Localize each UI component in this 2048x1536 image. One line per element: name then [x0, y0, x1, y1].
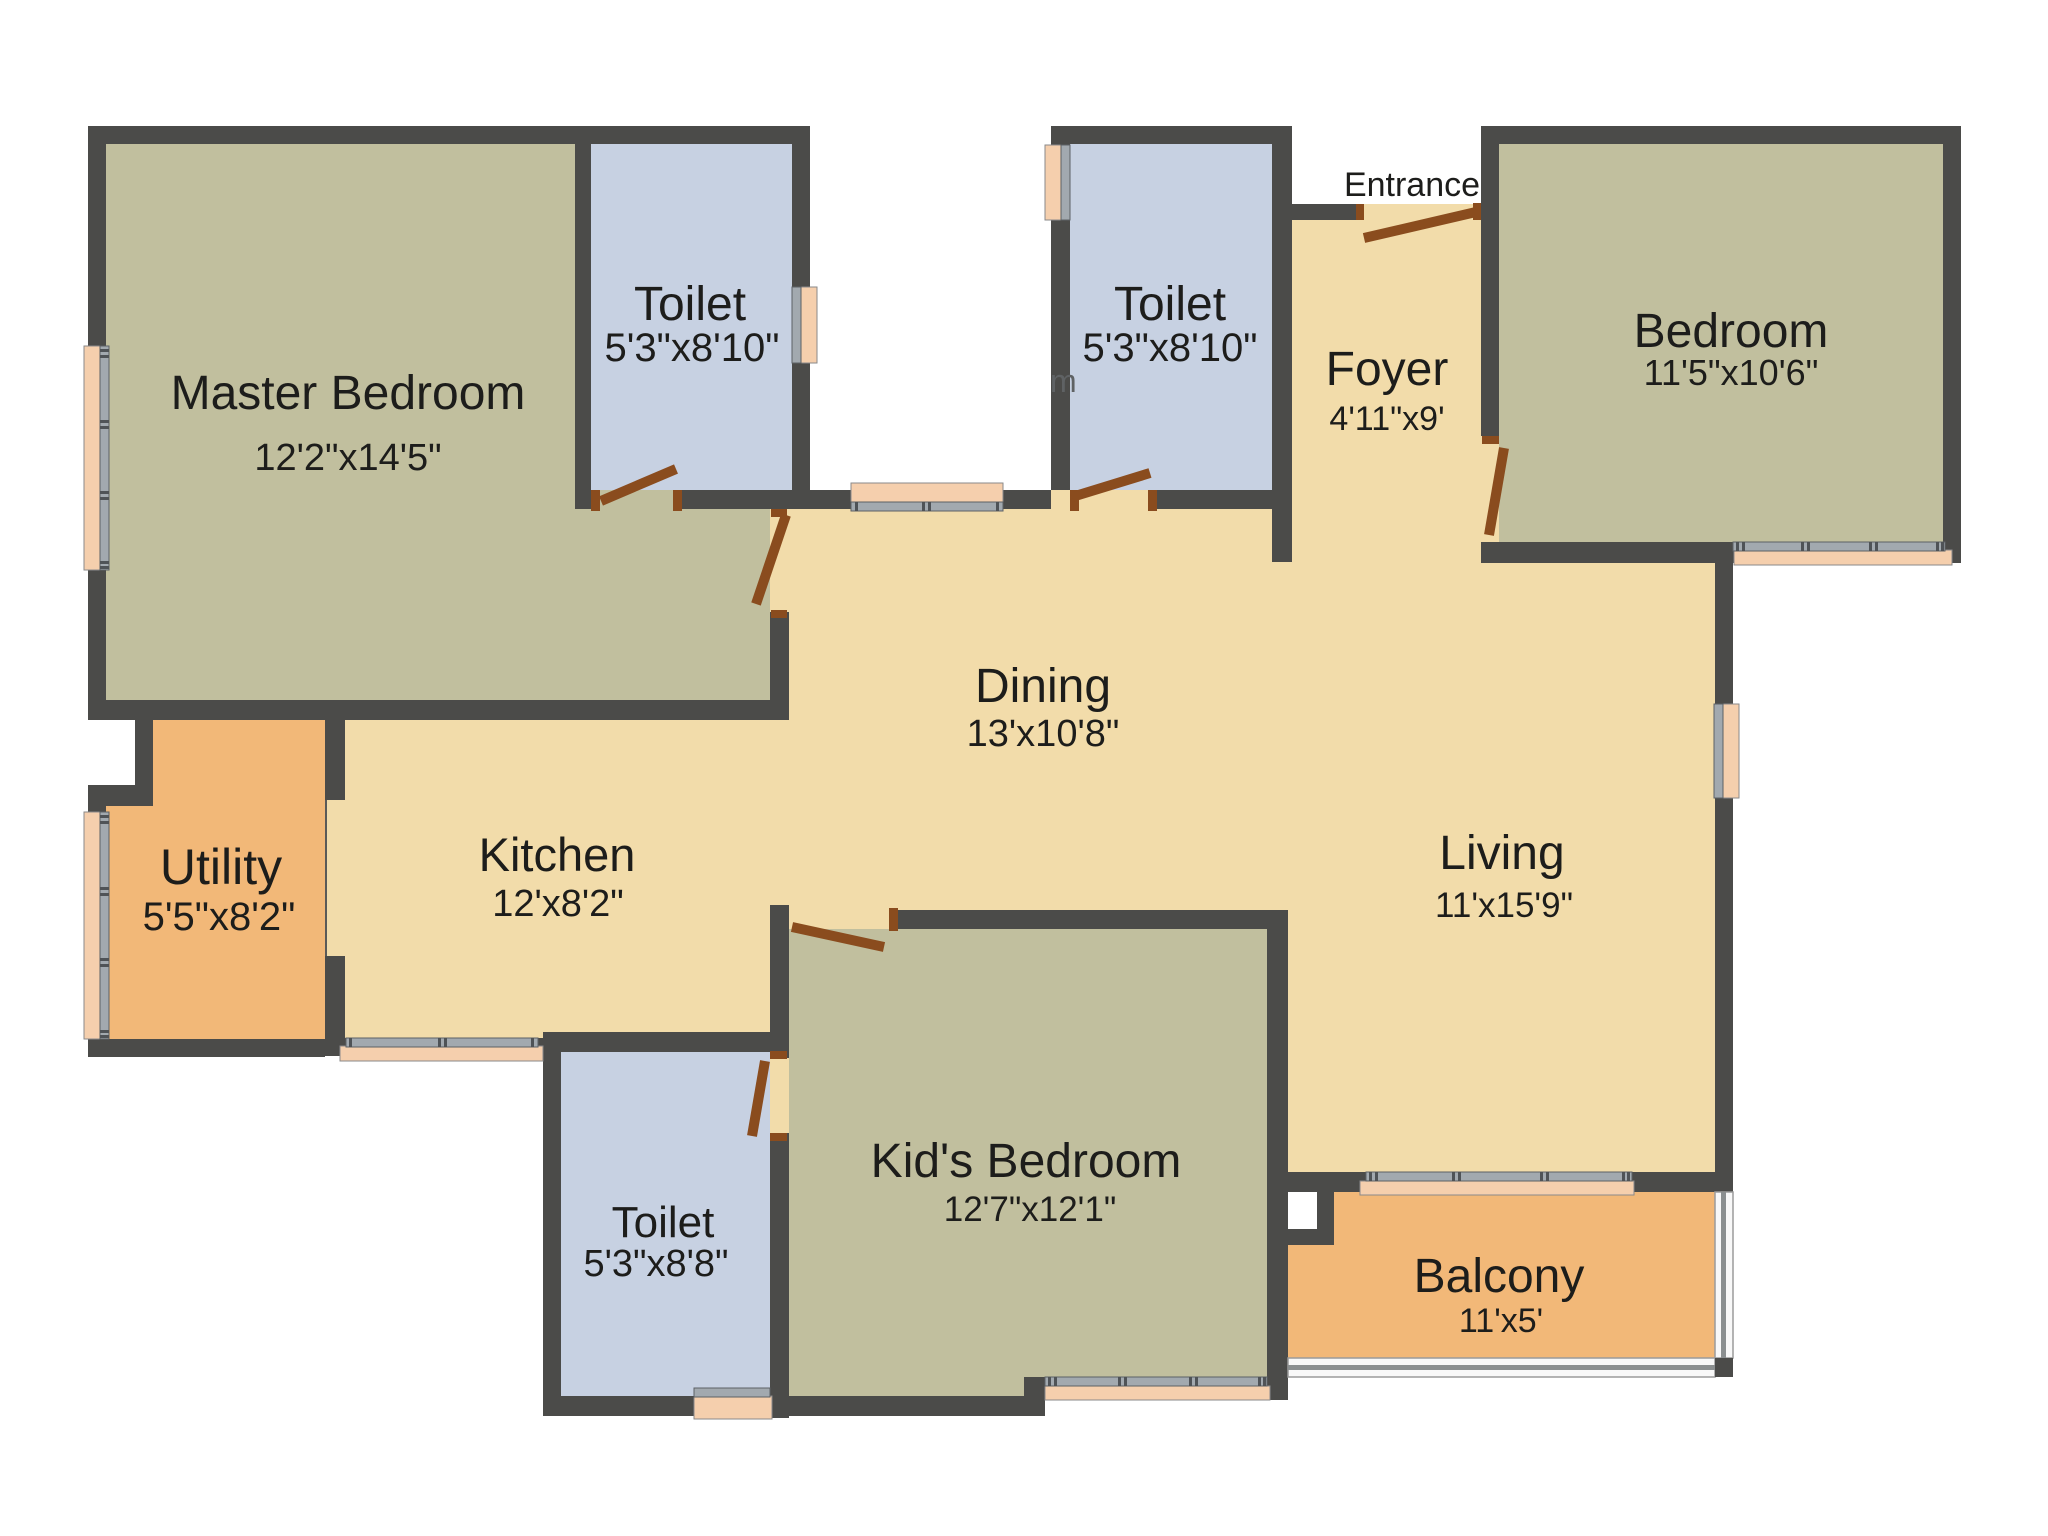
- svg-text:Balcony: Balcony: [1414, 1250, 1585, 1303]
- svg-text:Entrance: Entrance: [1344, 166, 1480, 204]
- svg-text:m: m: [1050, 363, 1077, 399]
- svg-text:12'2"x14'5": 12'2"x14'5": [254, 437, 441, 479]
- svg-text:11'x15'9": 11'x15'9": [1435, 886, 1573, 925]
- svg-text:4'11"x9': 4'11"x9': [1329, 400, 1444, 438]
- svg-text:12'x8'2": 12'x8'2": [492, 883, 624, 925]
- svg-text:Foyer: Foyer: [1326, 343, 1449, 396]
- svg-text:5'3"x8'10": 5'3"x8'10": [605, 326, 780, 370]
- svg-text:Utility: Utility: [160, 839, 282, 895]
- svg-text:5'3"x8'10": 5'3"x8'10": [1083, 326, 1258, 370]
- svg-text:Kitchen: Kitchen: [479, 828, 636, 881]
- svg-text:Living: Living: [1439, 827, 1564, 880]
- svg-text:11'x5': 11'x5': [1459, 1302, 1543, 1340]
- svg-text:13'x10'8": 13'x10'8": [967, 713, 1120, 755]
- svg-text:Toilet: Toilet: [1114, 278, 1226, 331]
- svg-text:12'7"x12'1": 12'7"x12'1": [944, 1190, 1117, 1229]
- svg-text:Toilet: Toilet: [612, 1198, 715, 1247]
- svg-text:11'5"x10'6": 11'5"x10'6": [1644, 352, 1819, 393]
- svg-text:Kid's Bedroom: Kid's Bedroom: [871, 1135, 1182, 1188]
- svg-text:Master Bedroom: Master Bedroom: [171, 367, 526, 420]
- svg-text:5'3"x8'8": 5'3"x8'8": [583, 1243, 728, 1285]
- svg-text:5'5"x8'2": 5'5"x8'2": [143, 895, 296, 939]
- svg-text:Bedroom: Bedroom: [1634, 305, 1829, 358]
- svg-text:Dining: Dining: [975, 660, 1111, 713]
- svg-text:Toilet: Toilet: [634, 278, 746, 331]
